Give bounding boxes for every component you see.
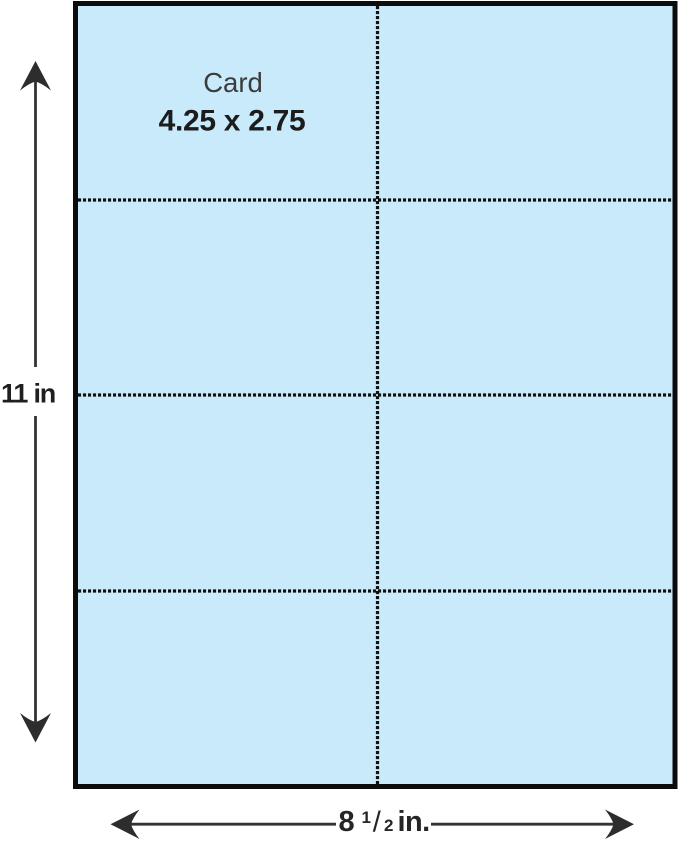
svg-text:11 in: 11 in — [1, 379, 55, 409]
svg-text:Card: Card — [203, 67, 263, 98]
svg-text:4.25 x 2.75: 4.25 x 2.75 — [159, 105, 306, 138]
